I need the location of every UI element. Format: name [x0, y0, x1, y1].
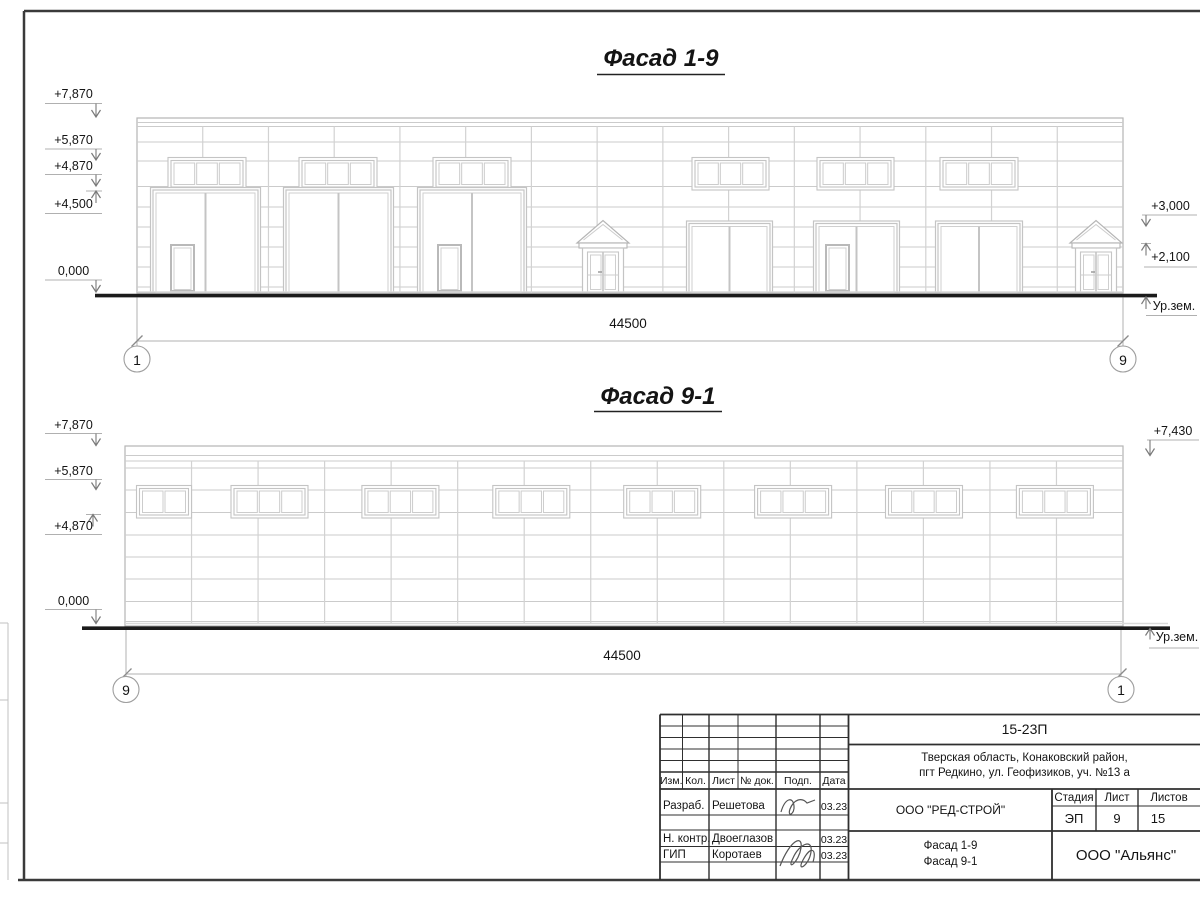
- titleblock-col-ndok: № док.: [738, 775, 776, 787]
- dimension-label: 44500: [582, 648, 662, 663]
- elevation-mark-label: +7,430: [1146, 424, 1200, 438]
- elevation-mark-label: +4,870: [45, 159, 102, 173]
- titleblock-name: Двоеглазов: [712, 833, 773, 845]
- titleblock-role: Н. контр.: [663, 833, 710, 845]
- elevation-mark-label: +7,870: [45, 418, 102, 432]
- facade-9-1-drawing: [82, 446, 1170, 628]
- elevation-mark-label: +5,870: [45, 133, 102, 147]
- titleblock-sheets-value: 15: [1138, 811, 1178, 826]
- axis-number: 9: [116, 682, 136, 698]
- titleblock-sheet-value: 9: [1096, 811, 1138, 826]
- axis-number: 1: [1111, 682, 1131, 698]
- titleblock-date: 03.23: [820, 834, 848, 846]
- titleblock-role: ГИП: [663, 849, 686, 861]
- titleblock-stage-value: ЭП: [1052, 811, 1096, 826]
- elevation-mark-label: 0,000: [45, 594, 102, 608]
- titleblock-col-podp: Подп.: [776, 775, 820, 787]
- titleblock-drawing-title-2: Фасад 9-1: [849, 856, 1052, 868]
- titleblock-drawing-title-1: Фасад 1-9: [849, 840, 1052, 852]
- elevation-mark-label: 0,000: [45, 264, 102, 278]
- titleblock-date: 03.23: [820, 801, 848, 813]
- facade-9-1-title: Фасад 9-1: [558, 383, 758, 411]
- titleblock-col-izm: Изм.: [660, 775, 682, 787]
- facade-1-9-drawing: [95, 118, 1157, 296]
- facade-1-9-title: Фасад 1-9: [561, 45, 761, 73]
- titleblock-name: Решетова: [712, 800, 765, 812]
- ground-level-label: Ур.зем.: [1151, 630, 1200, 644]
- elevation-mark-label: +5,870: [45, 464, 102, 478]
- titleblock-col-data: Дата: [820, 775, 848, 787]
- facade-1-9-dimension: [124, 298, 1136, 373]
- elevation-mark-label: +2,100: [1142, 250, 1199, 264]
- titleblock-date: 03.23: [820, 850, 848, 862]
- titleblock-address-line1: Тверская область, Конаковский район,: [849, 752, 1200, 764]
- titleblock-project-code: 15-23П: [849, 721, 1200, 737]
- elevation-mark-label: +4,500: [45, 197, 102, 211]
- facade-drawing-canvas: [0, 0, 1200, 900]
- ground-level-label: Ур.зем.: [1148, 299, 1200, 313]
- facade-9-1-dimension: [113, 630, 1134, 703]
- titleblock-col-kol: Кол.: [682, 775, 709, 787]
- elevation-mark-label: +3,000: [1142, 199, 1199, 213]
- titleblock-role: Разраб.: [663, 800, 704, 812]
- titleblock-designer-company: ООО "РЕД-СТРОЙ": [849, 803, 1052, 817]
- titleblock-col-list: Лист: [709, 775, 738, 787]
- sheet-margin-table: [0, 623, 8, 880]
- titleblock-signatures: [780, 800, 815, 867]
- dimension-label: 44500: [588, 316, 668, 331]
- titleblock-stage-header: Стадия: [1052, 792, 1096, 804]
- titleblock-address-line2: пгт Редкино, ул. Геофизиков, уч. №13 а: [849, 767, 1200, 779]
- drawing-sheet: Фасад 1-9 +7,870 +5,870 +4,870 +4,500 0,…: [0, 0, 1200, 900]
- elevation-mark-label: +7,870: [45, 87, 102, 101]
- titleblock-client-company: ООО "Альянс": [1052, 847, 1200, 864]
- titleblock-sheet-header: Лист: [1096, 792, 1138, 804]
- titleblock-sheets-header: Листов: [1138, 792, 1200, 804]
- elevation-mark-label: +4,870: [45, 519, 102, 533]
- titleblock-name: Коротаев: [712, 849, 762, 861]
- axis-number: 1: [127, 352, 147, 368]
- axis-number: 9: [1113, 352, 1133, 368]
